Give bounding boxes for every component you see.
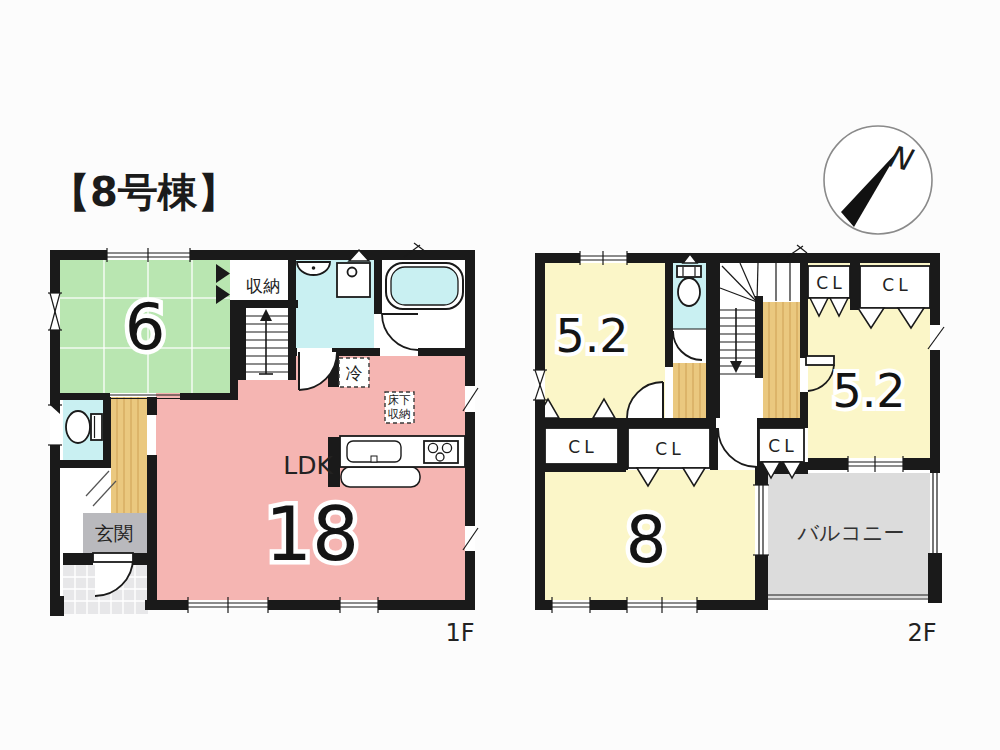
storage-label: 収納 xyxy=(246,276,280,296)
bathtub-icon xyxy=(386,263,463,309)
genkan-label: 玄関 xyxy=(95,522,133,544)
washing-machine-icon xyxy=(337,263,370,297)
stove-icon xyxy=(424,441,458,463)
toilet-1f-icon xyxy=(66,411,102,443)
ldk-label: LDK xyxy=(283,451,333,480)
underfloor-label-1: 床下 xyxy=(388,393,412,407)
floorplan-page: 【8号棟】 N xyxy=(0,0,1000,750)
stairs-1f xyxy=(246,308,288,380)
closet-5-label: CL xyxy=(882,275,911,295)
floorplan-svg: 【8号棟】 N xyxy=(0,0,1000,750)
floor-label-2f: 2F xyxy=(907,619,936,647)
underfloor-label-2: 収納 xyxy=(388,407,411,421)
closet-2-label: CL xyxy=(655,439,684,459)
ldk-size-label: 18 xyxy=(265,491,359,577)
bedroom-nw-size-label: 5.2 xyxy=(555,309,628,363)
toilet-2f-icon xyxy=(677,266,701,306)
bedroom-e-size-label: 5.2 xyxy=(832,364,905,418)
room-ldk-ext xyxy=(238,378,296,400)
balcony-label: バルコニー xyxy=(797,521,905,545)
hallway-2f-a xyxy=(673,363,706,418)
closet-3-label: CL xyxy=(768,436,797,456)
floor-1f: 6 収納 冷 床下 収納 LDK 18 玄関 1F xyxy=(48,243,478,647)
closet-4-label: CL xyxy=(816,273,845,293)
floor-label-1f: 1F xyxy=(445,619,474,647)
compass: N xyxy=(824,126,932,234)
closet-1-label: CL xyxy=(568,437,597,457)
bedroom-s-size-label: 8 xyxy=(626,503,667,577)
fridge-label: 冷 xyxy=(346,363,363,383)
tatami-size-label: 6 xyxy=(125,290,166,364)
page-title: 【8号棟】 xyxy=(50,169,238,215)
floor-2f: 5.2 5.2 8 CL CL CL CL CL バルコニー 2F xyxy=(533,245,944,647)
